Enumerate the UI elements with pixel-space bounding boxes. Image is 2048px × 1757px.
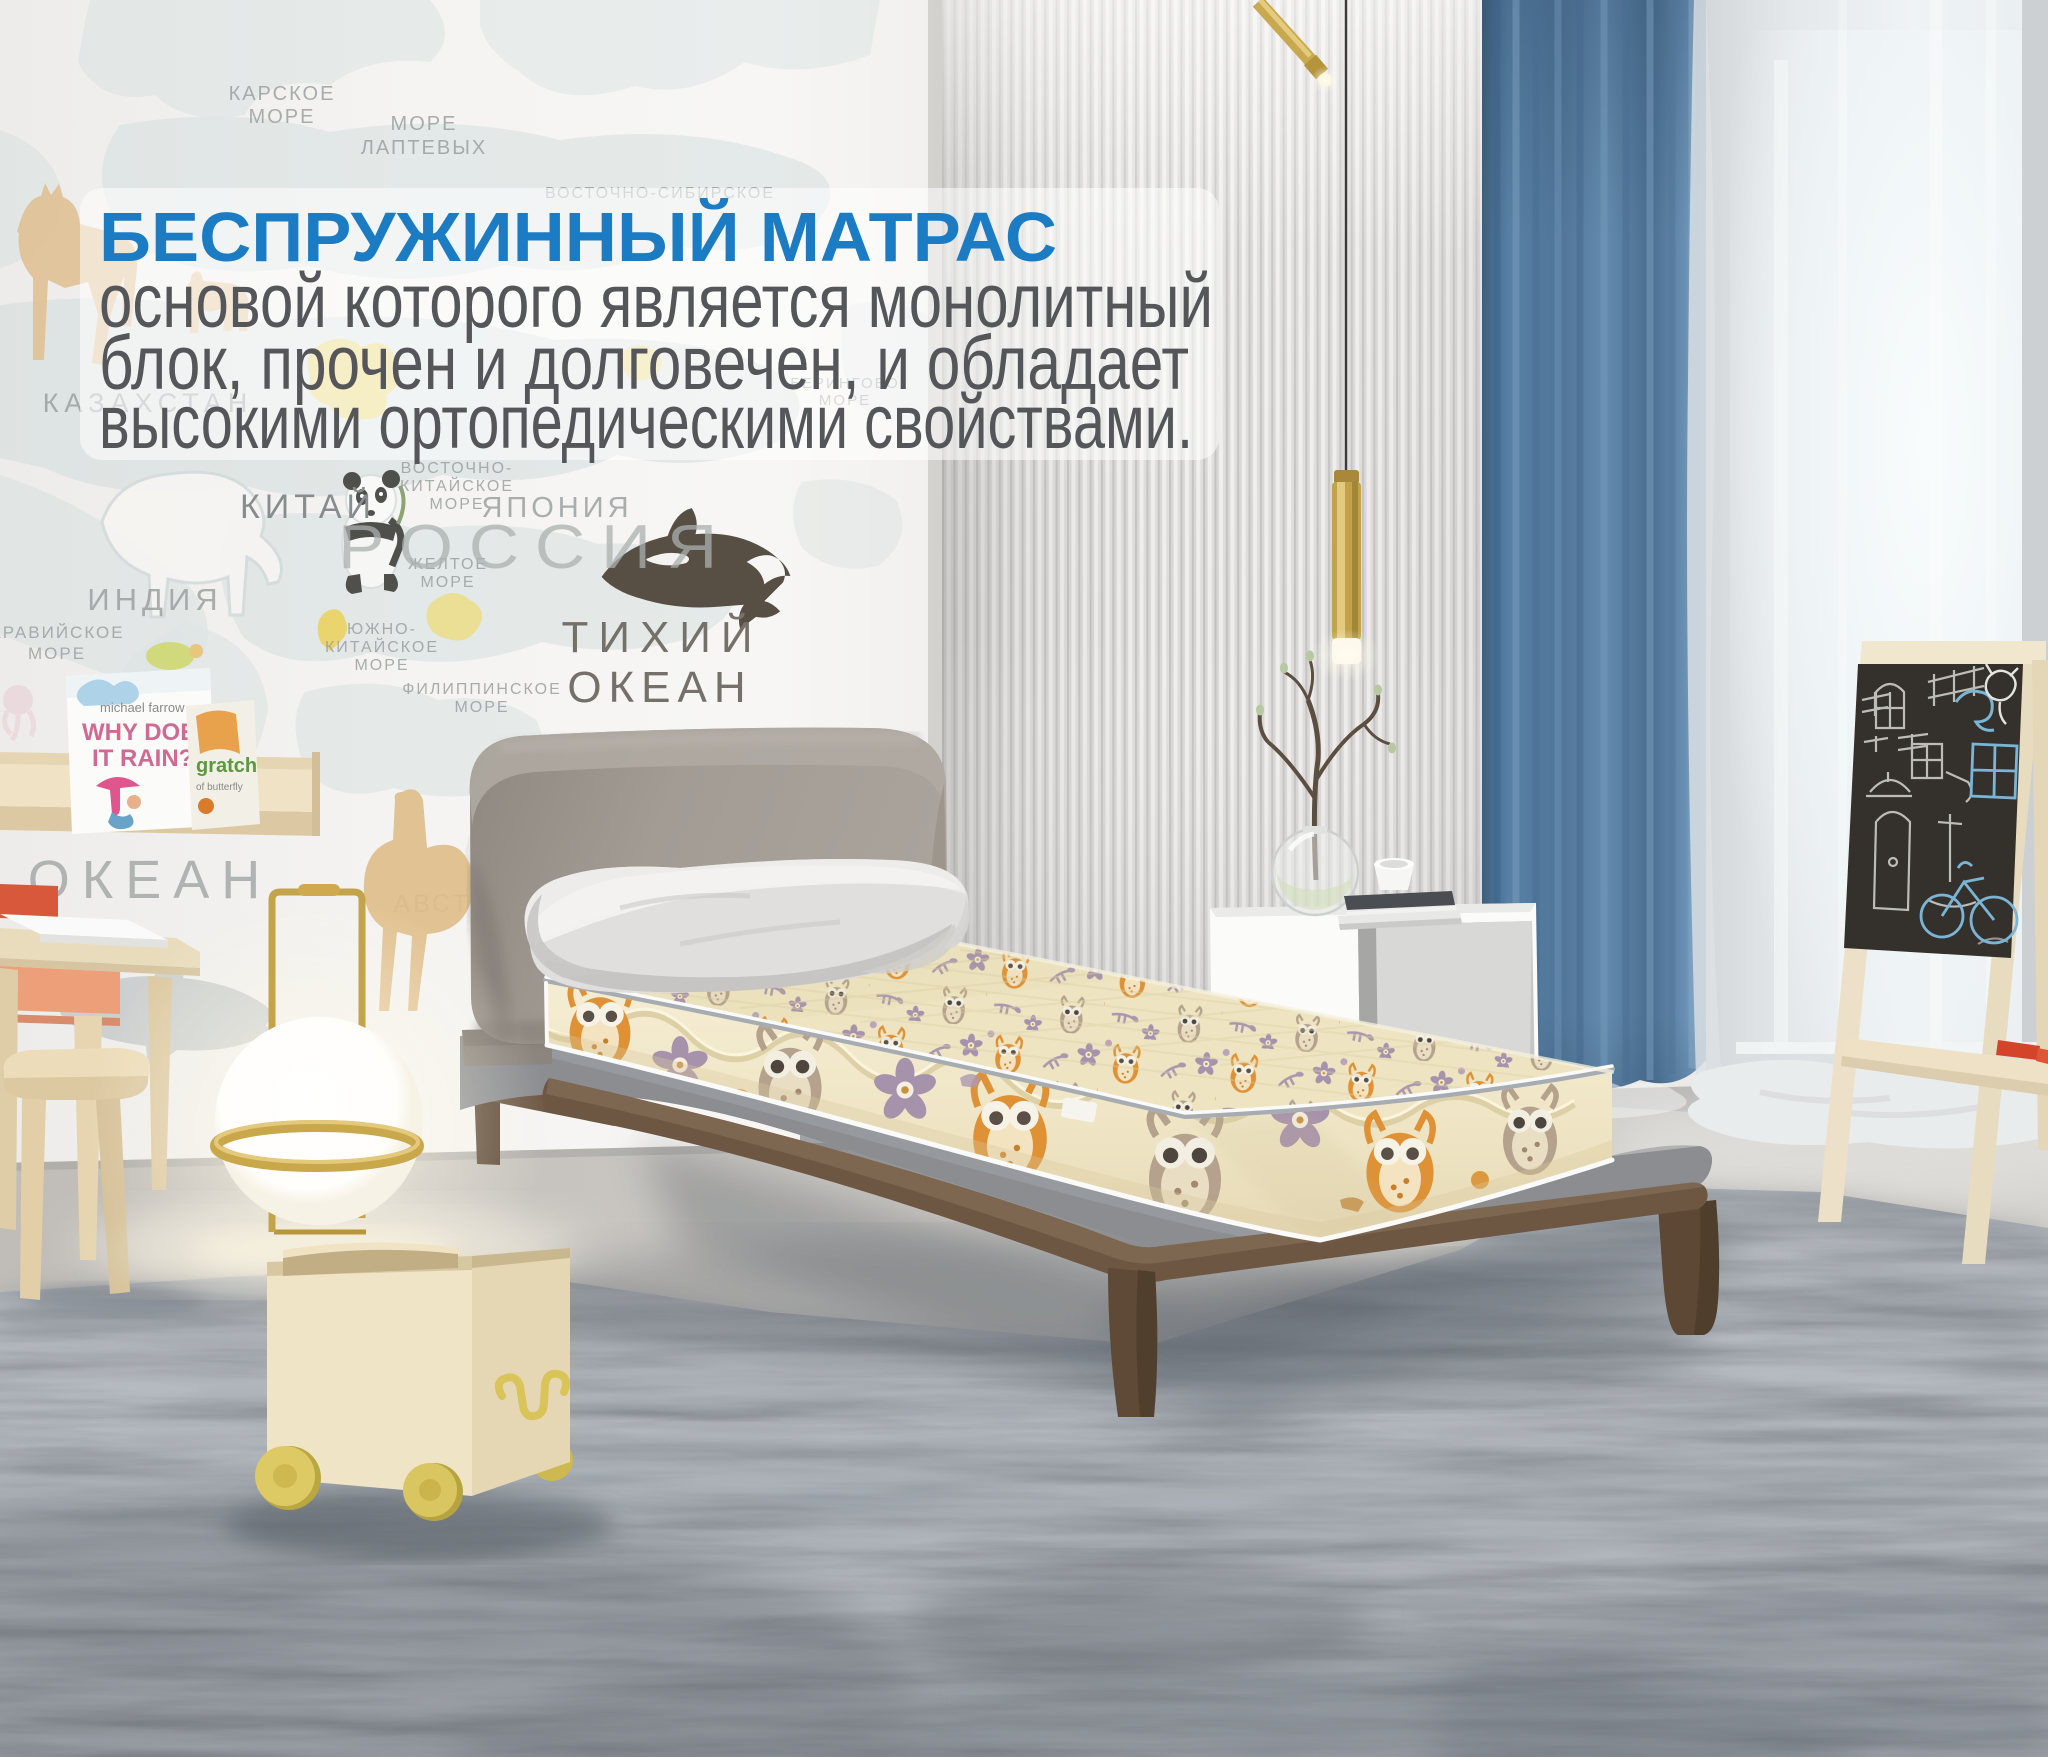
svg-text:IT RAIN?: IT RAIN?: [92, 745, 193, 772]
svg-text:michael farrow: michael farrow: [100, 700, 185, 715]
svg-text:КИТАЙСКОЕ: КИТАЙСКОЕ: [325, 637, 439, 656]
svg-text:ЛАПТЕВЫХ: ЛАПТЕВЫХ: [361, 137, 488, 159]
svg-text:ИНДИЯ: ИНДИЯ: [87, 582, 222, 617]
svg-text:МОРЕ: МОРЕ: [454, 699, 509, 716]
svg-text:ФИЛИППИНСКОЕ: ФИЛИППИНСКОЕ: [402, 681, 562, 698]
svg-text:МОРЕ: МОРЕ: [28, 644, 86, 663]
svg-text:МОРЕ: МОРЕ: [391, 113, 458, 135]
svg-text:КАРСКОЕ: КАРСКОЕ: [229, 83, 336, 105]
svg-text:gratch: gratch: [196, 755, 257, 777]
svg-text:РОССИЯ: РОССИЯ: [338, 513, 733, 582]
svg-text:КИТАЙ: КИТАЙ: [240, 488, 376, 526]
svg-text:ОКЕАН: ОКЕАН: [28, 850, 273, 910]
svg-text:МОРЕ: МОРЕ: [249, 106, 316, 128]
svg-text:ОКЕАН: ОКЕАН: [567, 663, 752, 712]
svg-text:of butterfly: of butterfly: [196, 782, 243, 793]
svg-text:КИТАЙСКОЕ: КИТАЙСКОЕ: [400, 476, 514, 495]
svg-text:МОРЕ: МОРЕ: [354, 657, 409, 674]
svg-text:ЮЖНО-: ЮЖНО-: [347, 621, 417, 638]
svg-text:высокими ортопедическими свойс: высокими ортопедическими свойствами.: [99, 380, 1193, 465]
svg-text:АРАВИЙСКОЕ: АРАВИЙСКОЕ: [0, 623, 125, 642]
svg-text:ТИХИЙ: ТИХИЙ: [561, 611, 762, 662]
svg-text:МОРЕ: МОРЕ: [429, 496, 484, 513]
